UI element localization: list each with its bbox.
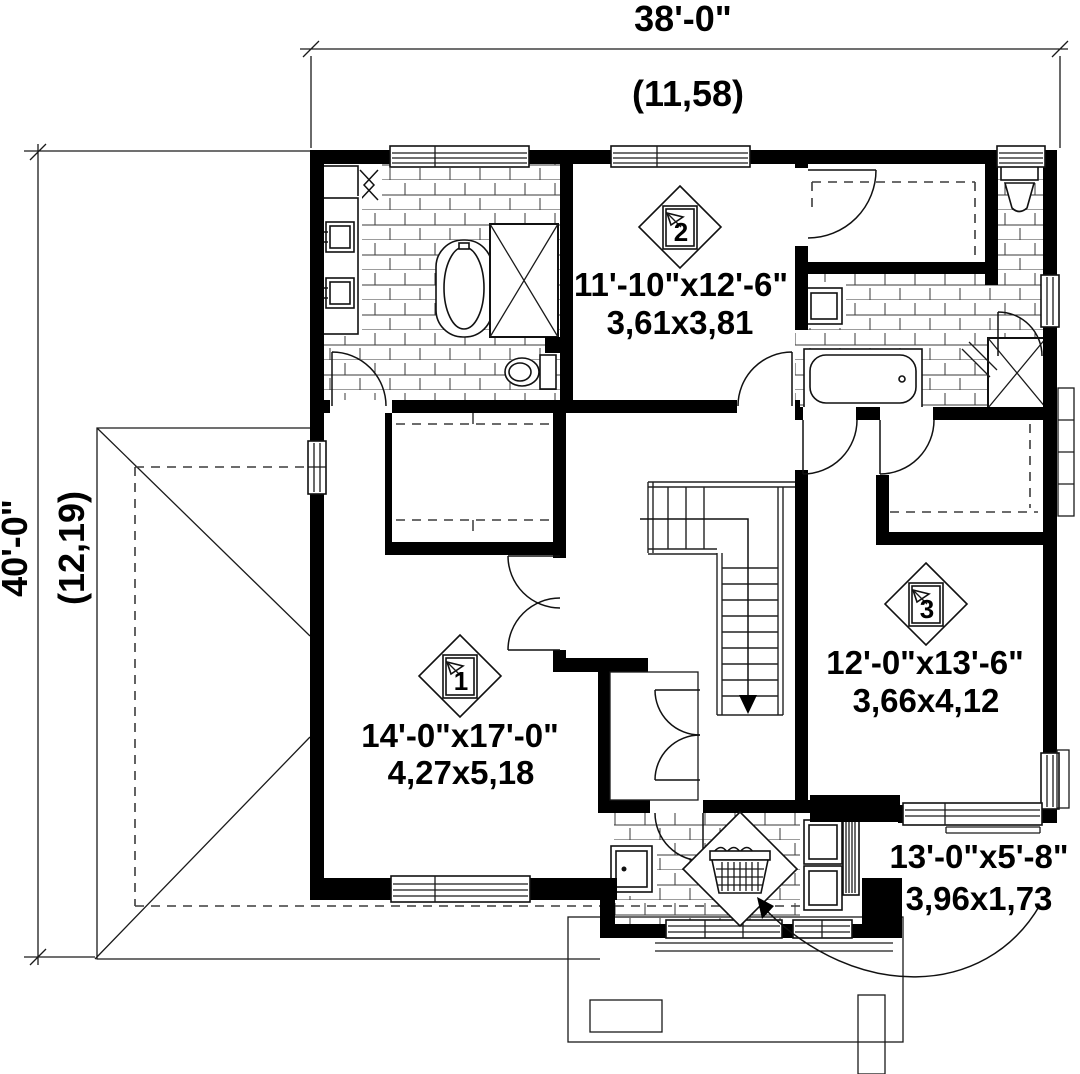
room-2-imperial: 11'-10"x12'-6" [574,266,788,303]
window-icon [997,146,1045,167]
svg-text:3: 3 [920,594,934,624]
double-vanity [318,196,362,336]
dimension-top: 38'-0" (11,58) [300,0,1068,148]
floor-plan-page: 38'-0" (11,58) 40'-0" (12,19) 1 14'-0"x1… [0,0,1080,1074]
window-icon [903,803,1042,825]
laundry-imperial: 13'-0"x5'-8" [889,838,1068,875]
dim-left-imperial: 40'-0" [0,499,35,597]
room-3-label: 3 12'-0"x13'-6" 3,66x4,12 [826,563,1023,719]
room-marker-2: 2 [639,186,721,268]
room-2-metric: 3,61x3,81 [607,304,754,341]
window-icon [1041,753,1059,809]
window-icon [793,920,852,938]
room-1-metric: 4,27x5,18 [388,754,535,791]
room-2-label: 2 11'-10"x12'-6" 3,61x3,81 [574,186,788,341]
double-door-bedroom1 [508,556,560,650]
window-icon [308,441,326,494]
room-3-imperial: 12'-0"x13'-6" [826,644,1023,681]
bathtub-icon [804,349,922,409]
door-swing-closet2 [808,170,876,238]
window-shutter-marks [1058,388,1074,516]
staircase [640,482,795,715]
window-icon [611,146,750,167]
room-1-label: 1 14'-0"x17'-0" 4,27x5,18 [361,635,558,791]
toilet-icon [505,355,556,389]
window-icon [1041,275,1059,327]
dim-left-metric: (12,19) [51,491,92,605]
door-swing-bath2 [803,420,857,474]
porch-outline [568,917,903,1074]
dim-top-imperial: 38'-0" [634,0,732,39]
room-3-metric: 3,66x4,12 [853,682,1000,719]
shower-icon [490,224,558,337]
room-1-imperial: 14'-0"x17'-0" [361,717,558,754]
door-swing-bedroom3 [880,420,934,474]
freestanding-tub [436,240,492,337]
svg-text:1: 1 [454,666,468,696]
washer-dryer [800,808,864,916]
window-icon [390,146,529,167]
window-sill [946,827,1040,833]
room-marker-1: 1 [419,635,501,717]
door-swing-bedroom2 [738,352,792,406]
floor-plan-drawing: 38'-0" (11,58) 40'-0" (12,19) 1 14'-0"x1… [0,0,1080,1074]
room-marker-3: 3 [885,563,967,645]
svg-text:2: 2 [674,217,688,247]
dimension-left: 40'-0" (12,19) [0,144,310,965]
window-icon [666,920,782,938]
dim-top-metric: (11,58) [632,73,744,114]
laundry-metric: 3,96x1,73 [906,880,1053,917]
hall-closet [610,672,700,800]
window-icon [391,876,530,902]
window-sill [655,943,893,951]
